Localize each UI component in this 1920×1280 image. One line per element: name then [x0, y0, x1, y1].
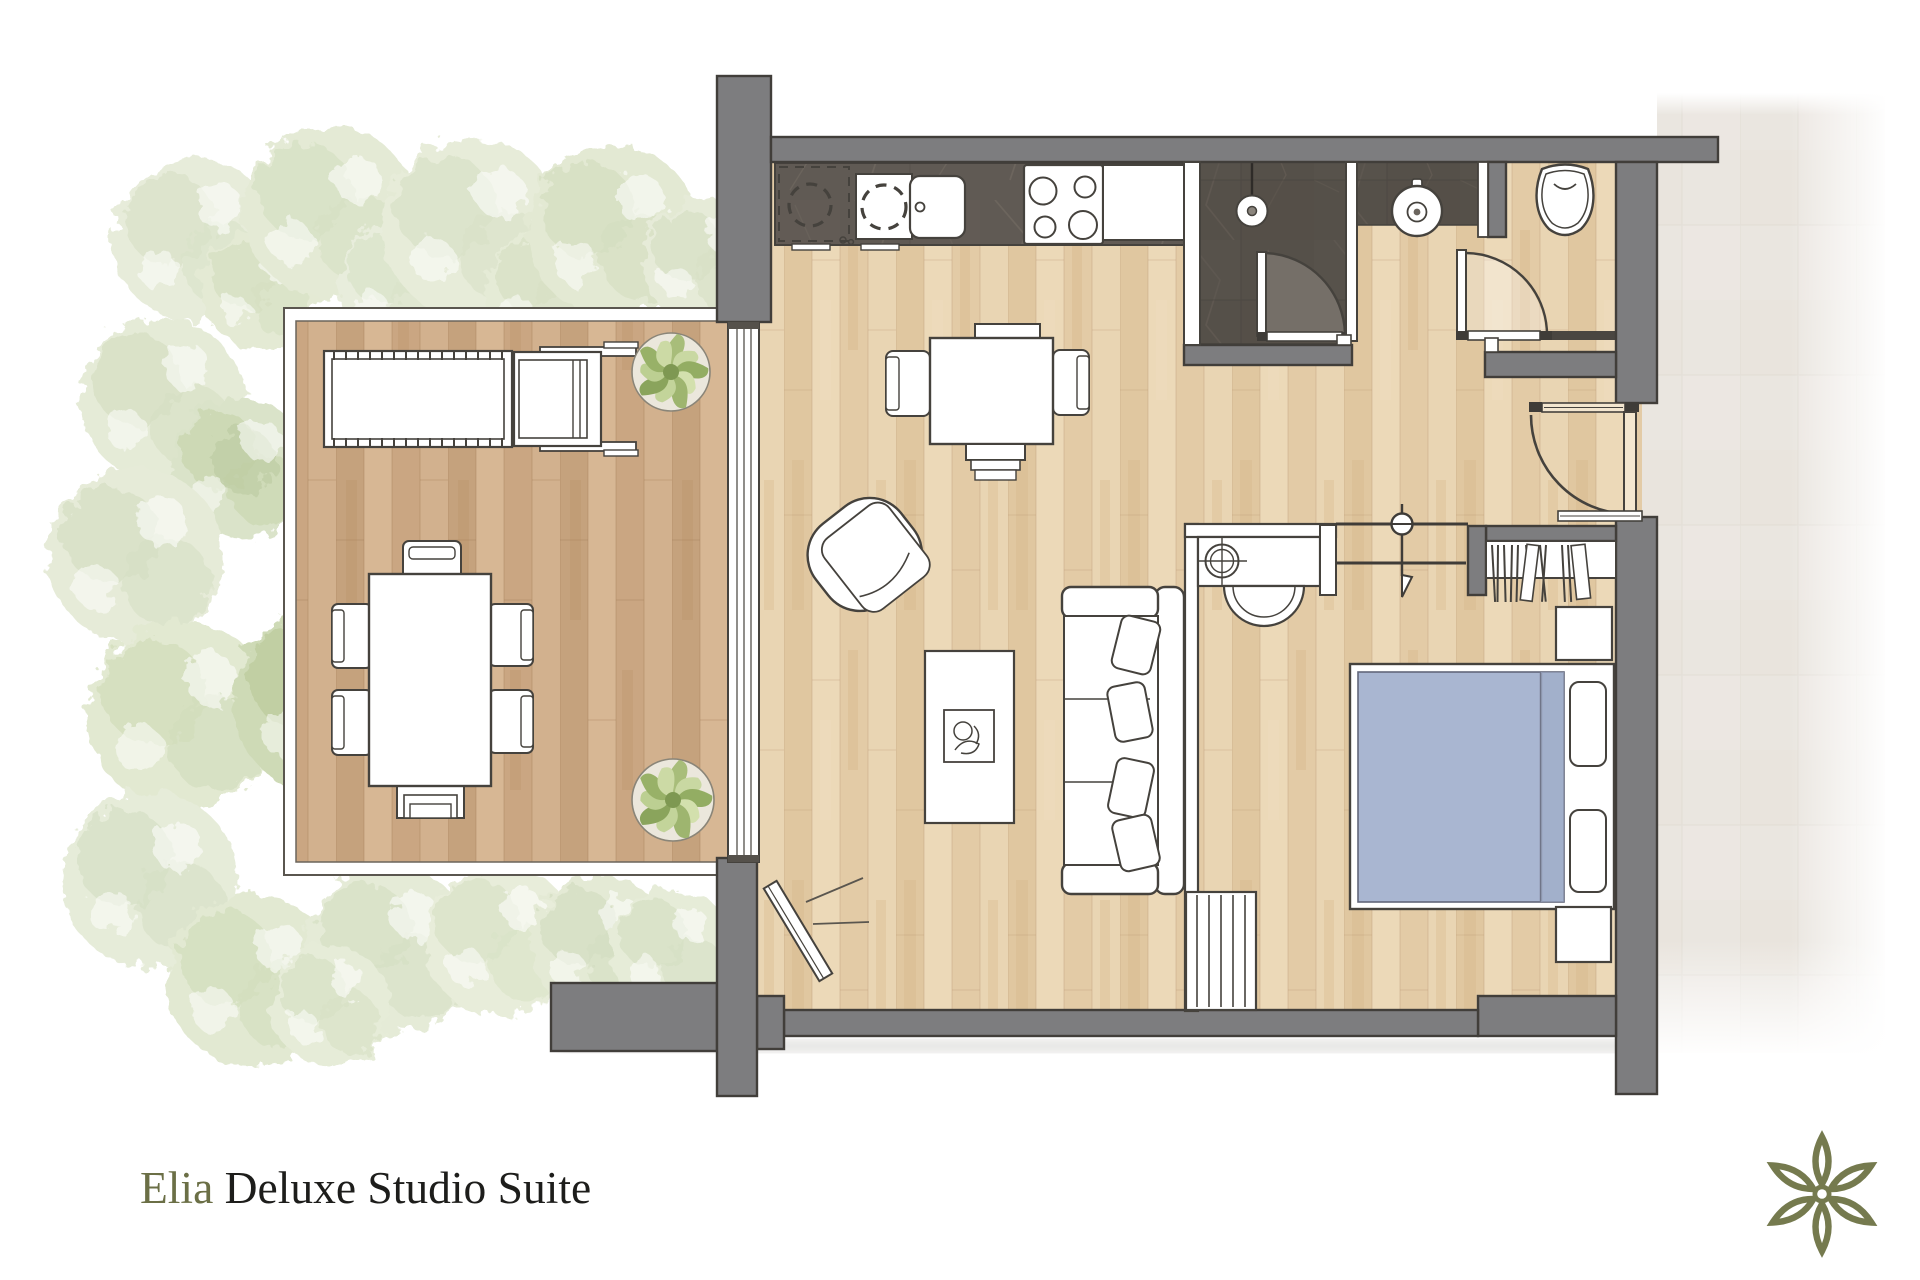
svg-text:Elia Deluxe Studio Suite: Elia Deluxe Studio Suite	[140, 1162, 591, 1213]
